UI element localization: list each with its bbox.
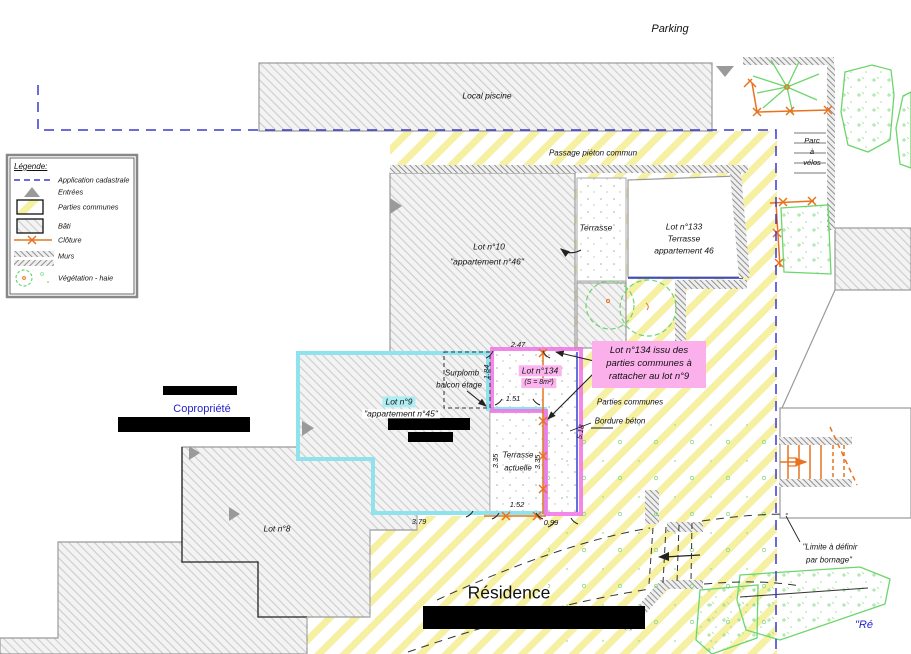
legend-item-application-cadastrale: Application cadastrale: [58, 176, 129, 185]
dim-151: 1.51: [506, 395, 521, 403]
lot134-callout: Lot n°134 issu des parties communes à ra…: [592, 341, 706, 388]
terrasse-actuelle-label1: Terrasse: [503, 452, 534, 461]
legend-item-entrees: Entrées: [58, 188, 83, 197]
legend-gray-hatch-icon: [17, 219, 43, 233]
lot8-label: Lot n°8: [263, 524, 290, 533]
building-lot10-annex: [577, 281, 626, 348]
legend-title: Légende:: [14, 162, 47, 171]
lot9-sublabel: "appartement n°45": [362, 409, 440, 418]
cadastral-site-plan: Légende: Application cadastrale Entrées …: [0, 0, 911, 654]
legend-wall-icon: [14, 260, 54, 266]
palm-tree-icon: [753, 60, 819, 114]
plan-drawing: [0, 0, 911, 654]
parc-velos-label2: à: [810, 148, 814, 156]
terrasse-label: Terrasse: [580, 223, 613, 232]
surplomb-label1: Surplomb: [445, 370, 479, 379]
legend-item-parties-communes: Parties communes: [58, 203, 118, 212]
callout-line1: Lot n°134 issu des: [610, 345, 688, 358]
lot134-area-label: (S = 8m²): [521, 378, 556, 388]
lot133-sublabel1: Terrasse: [668, 234, 701, 243]
legend-item-murs: Murs: [58, 252, 74, 261]
lot9-label: Lot n°9: [382, 396, 415, 407]
parc-velos-label1: Parc: [804, 137, 819, 145]
terrasse-actuelle-label2: actuelle: [504, 465, 532, 474]
residence-label: Résidence: [468, 583, 551, 602]
local-piscine-label: Local piscine: [462, 91, 511, 100]
dim-335-right: 3.35: [534, 455, 542, 470]
lot10-sublabel: "appartement n°46": [450, 257, 524, 266]
legend-item-cloture: Clôture: [58, 236, 82, 245]
dim-099: 0.99: [544, 519, 559, 527]
lot134-label: Lot n°134: [519, 365, 562, 376]
copropriete-label: Copropriété: [173, 403, 230, 415]
hedge: [841, 65, 894, 152]
passage-pieton-label: Passage piéton commun: [549, 150, 637, 159]
hedge: [896, 92, 911, 168]
parties-communes-label: Parties communes: [597, 399, 663, 408]
callout-line2: parties communes à: [606, 358, 692, 371]
bordure-beton-label: Bordure béton: [595, 418, 646, 427]
dim-335-left: 3.35: [492, 454, 500, 469]
limite-label2: par bornage": [806, 557, 852, 566]
lot10-label: Lot n°10: [473, 242, 505, 251]
hedge: [781, 205, 831, 274]
legend-yellow-hatch-icon: [17, 200, 43, 214]
dim-379: 3.79: [412, 518, 427, 526]
dim-152: 1.52: [510, 501, 525, 509]
limite-label1: "Limite à définir: [803, 544, 858, 553]
surplomb-label2: balcon étage: [436, 382, 482, 391]
building-northeast: [835, 228, 911, 290]
dim-184: 1.84: [483, 365, 491, 380]
neighbor-residence-label: "Ré: [855, 619, 873, 631]
legend-item-bati: Bâti: [58, 222, 71, 231]
legend-item-vegetation: Végétation - haie: [58, 274, 113, 283]
legend-wall-icon: [14, 251, 54, 257]
lot133-sublabel2: appartement 46: [654, 246, 714, 255]
parc-velos-label3: vélos: [803, 159, 821, 167]
lot133-label: Lot n°133: [666, 222, 703, 231]
dim-247: 2.47: [511, 341, 526, 349]
parking-label: Parking: [651, 23, 688, 35]
callout-line3: rattacher au lot n°9: [609, 371, 689, 384]
